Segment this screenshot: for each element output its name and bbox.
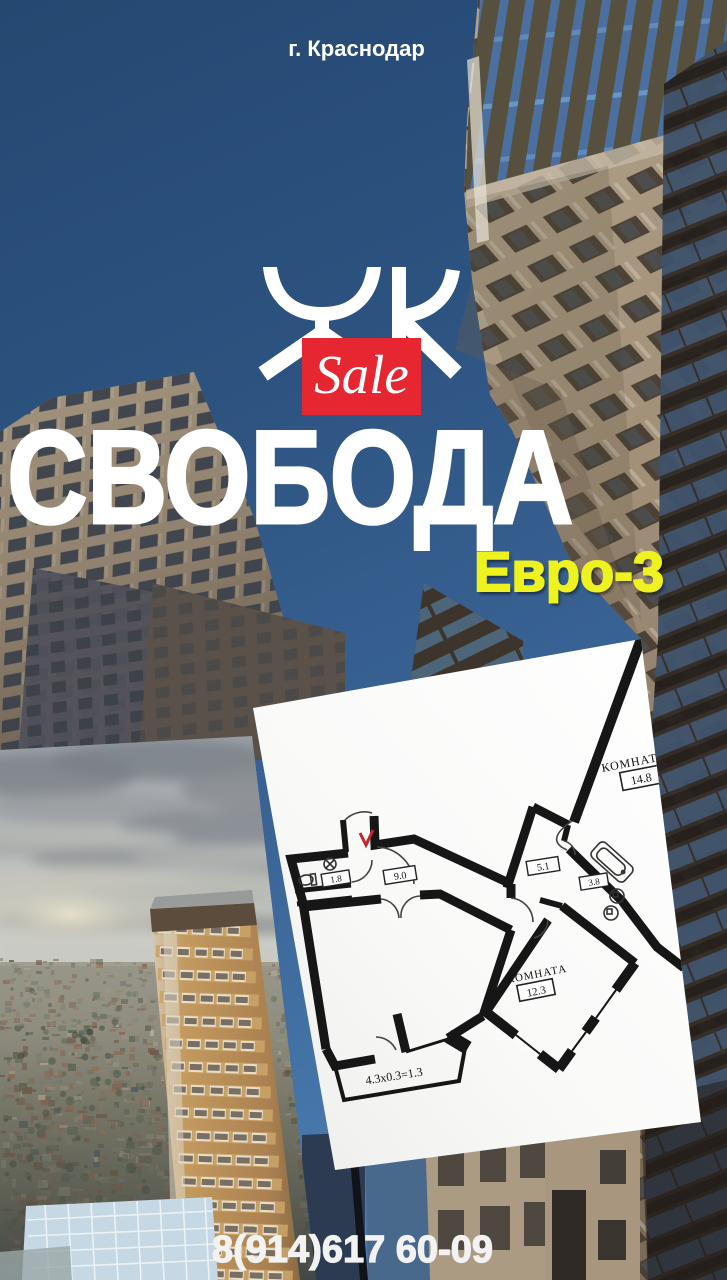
svg-text:9.0: 9.0 (393, 870, 407, 883)
svg-text:5.1: 5.1 (536, 861, 550, 874)
svg-text:1.8: 1.8 (330, 873, 343, 885)
svg-text:3.8: 3.8 (588, 876, 601, 888)
